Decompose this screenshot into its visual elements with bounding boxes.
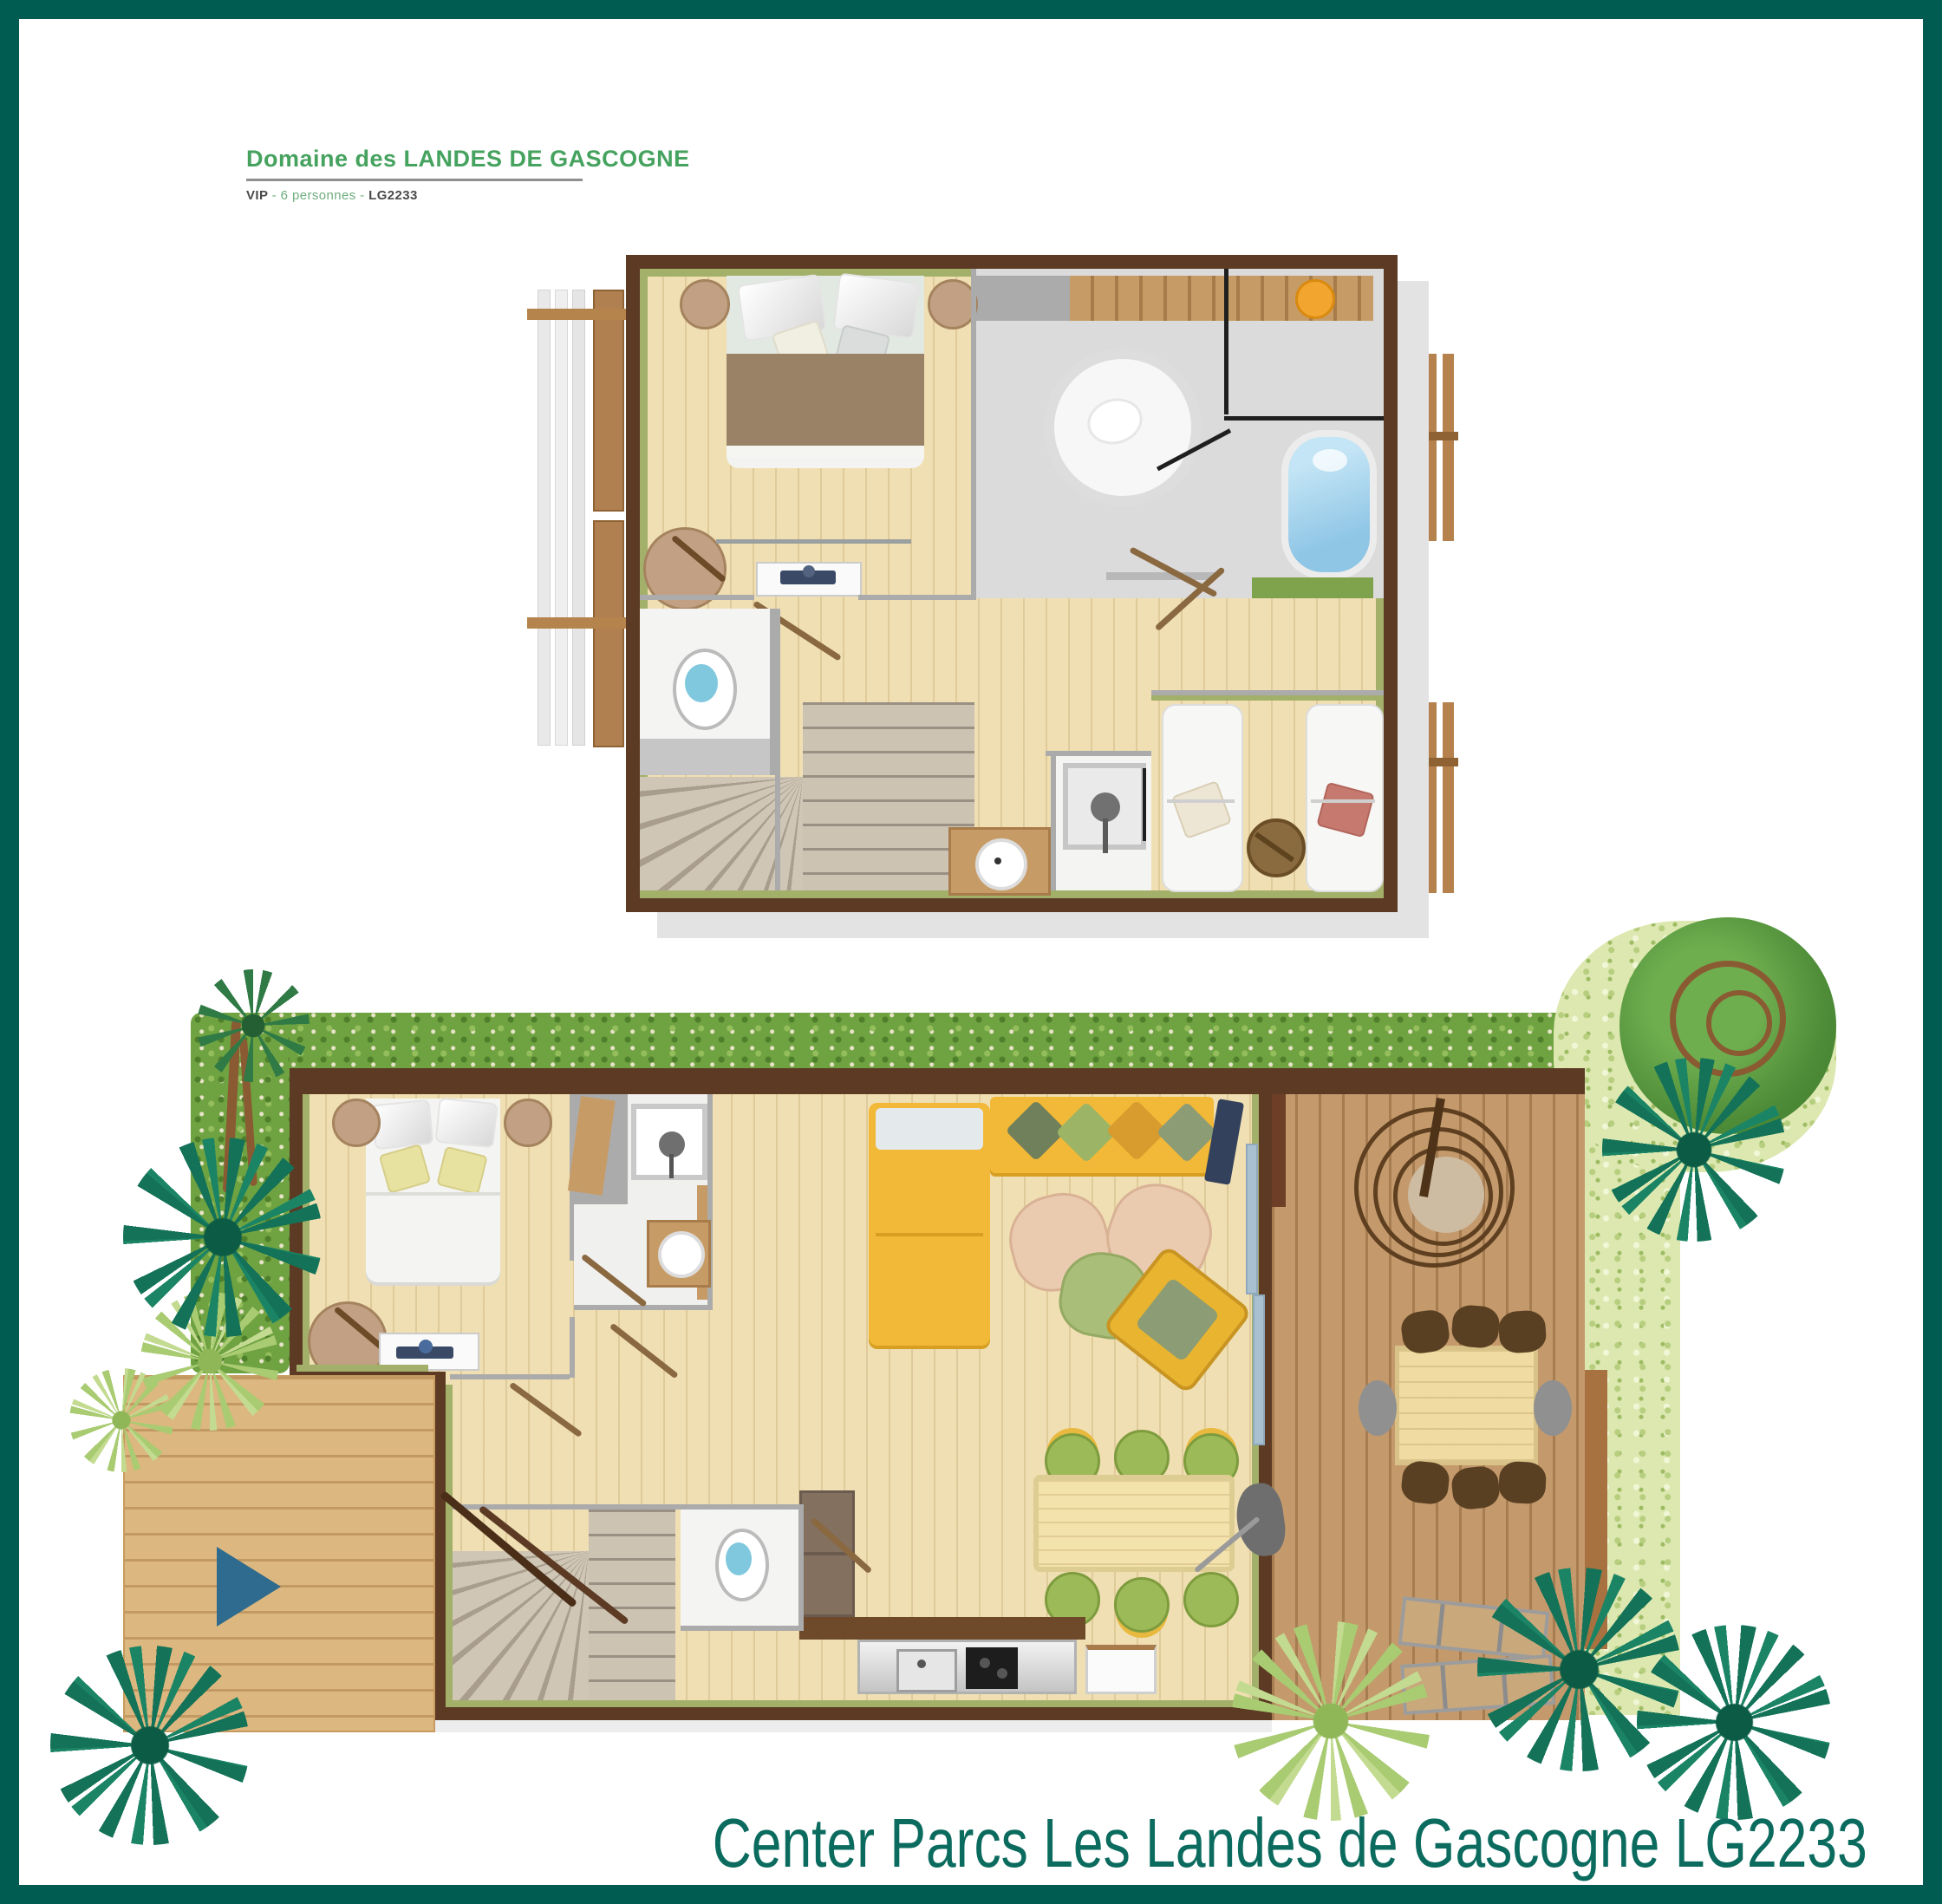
fence-slat <box>572 290 585 746</box>
kitchen-cabinet <box>1085 1645 1157 1694</box>
washbasin-icon <box>975 838 1027 890</box>
cushion-icon <box>379 1144 432 1194</box>
bedroom-wall-trim <box>297 1365 428 1372</box>
dining-chair-icon <box>1183 1572 1239 1627</box>
shower-stall-icon <box>631 1104 707 1180</box>
palm-tree-icon <box>50 1646 250 1845</box>
upper-shower-room <box>1051 756 1151 890</box>
wall-toilet-stairs <box>775 609 780 890</box>
brand-subtitle-prefix: VIP <box>246 188 268 203</box>
burner-icon <box>980 1658 990 1668</box>
fence-post <box>593 520 624 747</box>
fence-slat <box>1443 702 1454 893</box>
chaise-fold <box>876 1233 983 1236</box>
nightstand-icon <box>680 279 730 329</box>
door-swing-bedroom <box>509 1382 583 1438</box>
sofa-long <box>990 1097 1214 1173</box>
dresser-tv-unit <box>756 562 862 597</box>
bath-mat-icon <box>1252 577 1373 598</box>
fence-rail <box>527 309 626 320</box>
wardrobe-door <box>568 1096 616 1195</box>
sofa-chaise <box>869 1103 990 1346</box>
outdoor-chair-icon <box>1450 1304 1501 1350</box>
ground-toilet-room <box>681 1510 804 1631</box>
brand-subtitle: VIP - 6 personnes - LG2233 <box>246 188 690 203</box>
kitchen-counter <box>857 1640 1077 1694</box>
palm-tree-icon <box>197 969 310 1082</box>
bed-fold <box>366 1192 500 1196</box>
lounger-bar <box>1440 1666 1447 1709</box>
bathtub-water-highlight <box>1313 449 1347 472</box>
bedroom2-trim <box>1151 695 1384 701</box>
outdoor-end-chair-icon <box>1534 1380 1572 1436</box>
tree-swirl <box>1706 990 1772 1056</box>
ground-shower-room <box>574 1083 713 1310</box>
cushion-icon <box>436 1146 488 1196</box>
upper-toilet-room <box>640 609 775 775</box>
toilet-bowl <box>726 1542 752 1575</box>
stool-orange-icon <box>1295 279 1335 319</box>
faucet-icon <box>917 1659 926 1668</box>
page-title: Center Parcs Les Landes de Gascogne LG22… <box>713 1803 1867 1883</box>
tv-knob-icon <box>803 565 815 577</box>
fence-slat <box>555 290 568 746</box>
palm-tree-icon <box>1231 1621 1430 1821</box>
single-bed <box>1306 704 1384 892</box>
basin-tap-icon <box>994 857 1001 864</box>
palm-tree-icon <box>1602 1058 1786 1242</box>
cushion-icon <box>1171 780 1232 839</box>
brand-subtitle-mid: - 6 personnes - <box>272 188 365 203</box>
toilet-icon <box>715 1529 769 1601</box>
wall-bedroom-bathroom <box>971 269 976 597</box>
balcony-fence-left <box>536 290 626 744</box>
outdoor-table-icon <box>1395 1346 1538 1465</box>
round-stool-icon <box>1247 818 1306 877</box>
fence-slat <box>1425 702 1437 893</box>
wall-bedroom-b <box>570 1317 575 1378</box>
fence-post <box>1404 349 1418 548</box>
toilet-counter <box>640 739 770 775</box>
shower-pipe <box>669 1154 674 1178</box>
sliding-glass-door <box>1246 1144 1258 1294</box>
hall-wall-trim <box>446 1385 453 1707</box>
bed-fold <box>1311 799 1375 803</box>
nightstand-icon <box>504 1099 552 1147</box>
outdoor-end-chair-icon <box>1359 1380 1397 1436</box>
washbasin-counter <box>948 827 1051 896</box>
nightstand-icon <box>332 1099 381 1147</box>
toilet-bowl <box>685 664 718 702</box>
bed-duvet <box>727 354 924 446</box>
towel-rail-icon <box>1106 572 1215 580</box>
palm-tree-icon <box>1637 1625 1832 1820</box>
hanging-egg-chair-icon <box>1354 1103 1510 1263</box>
wall-bedroom-hall <box>450 1374 570 1379</box>
terrace-wall-stub <box>1272 1094 1286 1207</box>
brand-rule <box>246 179 583 181</box>
fence-post <box>1404 697 1418 900</box>
ground-floor-plan <box>290 1070 1272 1720</box>
shower-handle <box>1143 768 1146 841</box>
fence-rail <box>1404 758 1458 766</box>
shower-stall-icon <box>1063 763 1146 850</box>
cooktop-icon <box>966 1647 1018 1689</box>
outdoor-chair-icon <box>1498 1461 1547 1505</box>
bathroom-counter <box>976 276 1070 321</box>
sliding-glass-door <box>1253 1294 1265 1445</box>
outdoor-chair-icon <box>1450 1464 1502 1510</box>
door-swing-hall <box>609 1323 679 1379</box>
fence-slat <box>538 290 551 746</box>
round-shower-icon <box>1044 349 1202 506</box>
floorplan-page: Domaine des LANDES DE GASCOGNE VIP - 6 p… <box>0 0 1942 1904</box>
hall-rail <box>716 539 911 544</box>
bathtub-icon <box>1281 430 1377 579</box>
wall-bedroom-hall-b <box>858 595 976 600</box>
single-bed <box>1162 704 1243 892</box>
washbasin-icon <box>658 1231 705 1278</box>
upper-floor-plan <box>626 255 1398 912</box>
outdoor-chair-icon <box>1400 1459 1451 1505</box>
brand-title: Domaine des LANDES DE GASCOGNE <box>246 146 690 173</box>
shower-pipe <box>1103 818 1108 853</box>
lounger-bar <box>1437 1604 1445 1646</box>
fence-rail <box>1404 432 1458 440</box>
upper-double-bed <box>727 276 924 468</box>
grass-tuft-icon <box>69 1368 173 1472</box>
shower-head-icon <box>1091 792 1120 822</box>
palm-tree-icon <box>123 1138 323 1337</box>
fence-rail <box>527 617 626 629</box>
brand-block: Domaine des LANDES DE GASCOGNE VIP - 6 p… <box>246 146 690 203</box>
stool-line <box>1254 832 1294 863</box>
fence-post <box>593 290 624 512</box>
fence-slat <box>1443 354 1454 541</box>
entrance-arrow-icon <box>217 1547 281 1627</box>
hedge-top <box>223 1013 1585 1075</box>
door-swing-bathroom <box>581 1254 648 1307</box>
shower-screen-horizontal <box>1224 416 1384 421</box>
upper-bathroom <box>976 269 1384 598</box>
cushion-icon <box>1316 782 1375 838</box>
pillow-icon <box>434 1098 498 1149</box>
burner-icon <box>997 1668 1007 1679</box>
ground-top-wall <box>290 1068 1585 1094</box>
outdoor-chair-icon <box>1497 1309 1547 1354</box>
shower-screen-vertical <box>1224 269 1228 414</box>
shower-drain-icon <box>1082 393 1147 451</box>
chaise-pillow <box>876 1108 983 1150</box>
bed-fold <box>727 446 924 458</box>
footer-caption-block: Center Parcs Les Landes de Gascogne LG22… <box>387 1803 1867 1883</box>
fence-slat <box>1425 354 1437 541</box>
kitchen-sink-icon <box>896 1649 957 1692</box>
toilet-icon <box>673 649 737 730</box>
fence-right-upper <box>1404 349 1458 548</box>
dining-table-icon <box>1033 1475 1235 1572</box>
kitchen-backsplash <box>799 1617 1085 1640</box>
brand-subtitle-code: LG2233 <box>368 188 418 203</box>
ground-double-bed <box>366 1099 500 1282</box>
fence-right-lower <box>1404 697 1458 900</box>
dresser-bowl-icon <box>419 1340 433 1353</box>
wall-bedroom-hall-a <box>640 595 754 600</box>
dining-chair-icon <box>1114 1577 1170 1633</box>
bed-fold <box>1167 799 1235 803</box>
wardrobe-icon <box>574 1092 628 1204</box>
washbasin-counter <box>647 1220 711 1288</box>
